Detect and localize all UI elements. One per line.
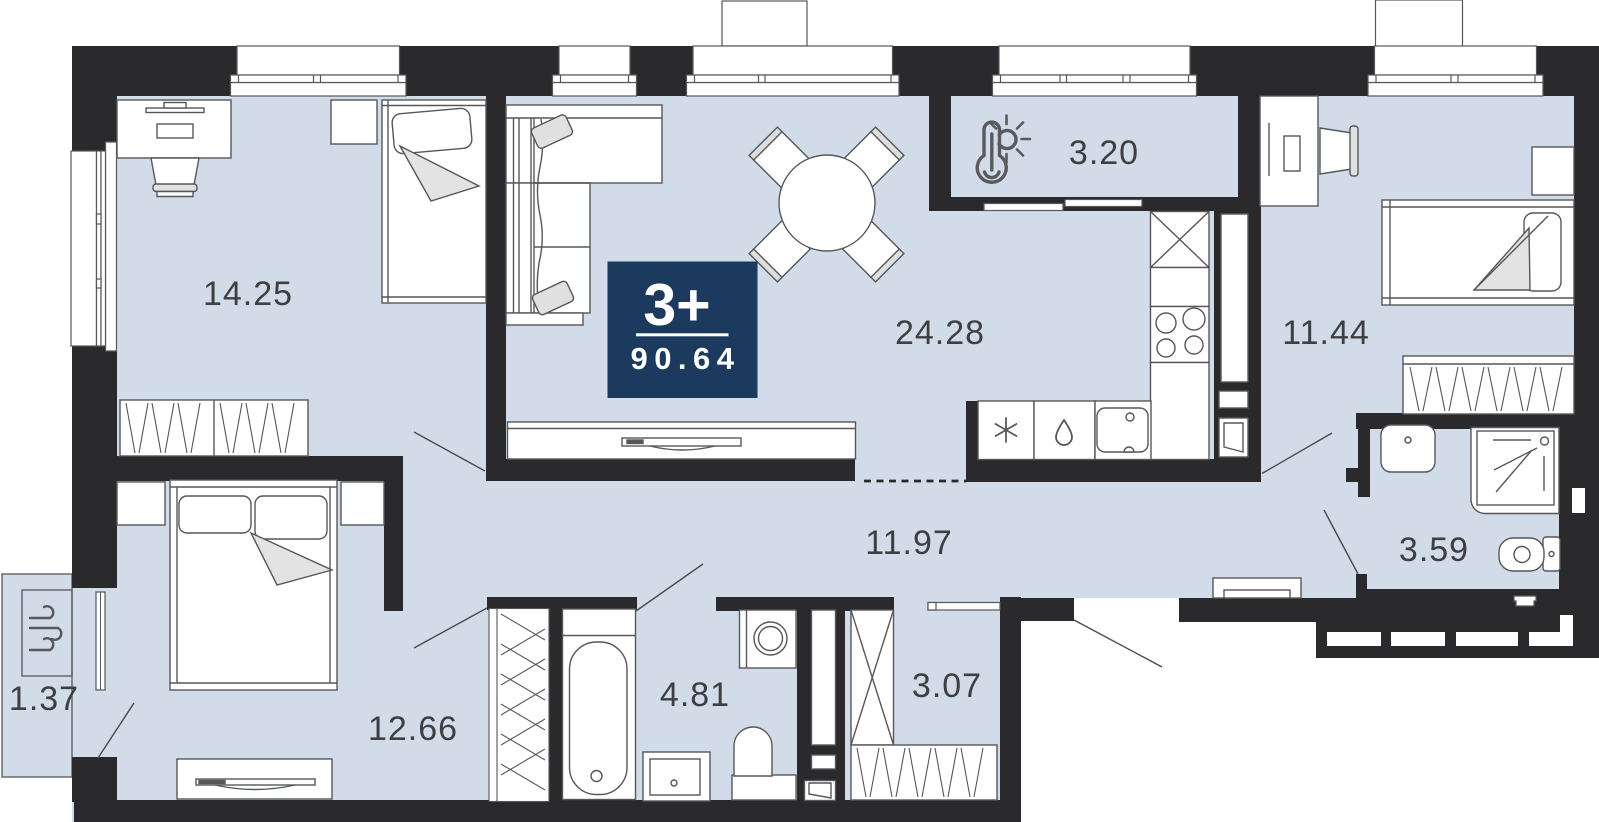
svg-text:4.81: 4.81 bbox=[660, 676, 730, 714]
svg-text:3+: 3+ bbox=[643, 272, 710, 338]
svg-text:12.66: 12.66 bbox=[368, 710, 458, 748]
svg-text:1.37: 1.37 bbox=[9, 680, 79, 718]
svg-text:3.20: 3.20 bbox=[1069, 134, 1139, 172]
svg-text:3.07: 3.07 bbox=[912, 667, 982, 705]
svg-text:24.28: 24.28 bbox=[895, 314, 985, 352]
svg-text:11.44: 11.44 bbox=[1282, 314, 1370, 352]
svg-text:3.59: 3.59 bbox=[1399, 531, 1469, 569]
svg-text:14.25: 14.25 bbox=[203, 275, 293, 313]
svg-text:90.64: 90.64 bbox=[630, 341, 740, 376]
svg-text:11.97: 11.97 bbox=[865, 524, 953, 562]
